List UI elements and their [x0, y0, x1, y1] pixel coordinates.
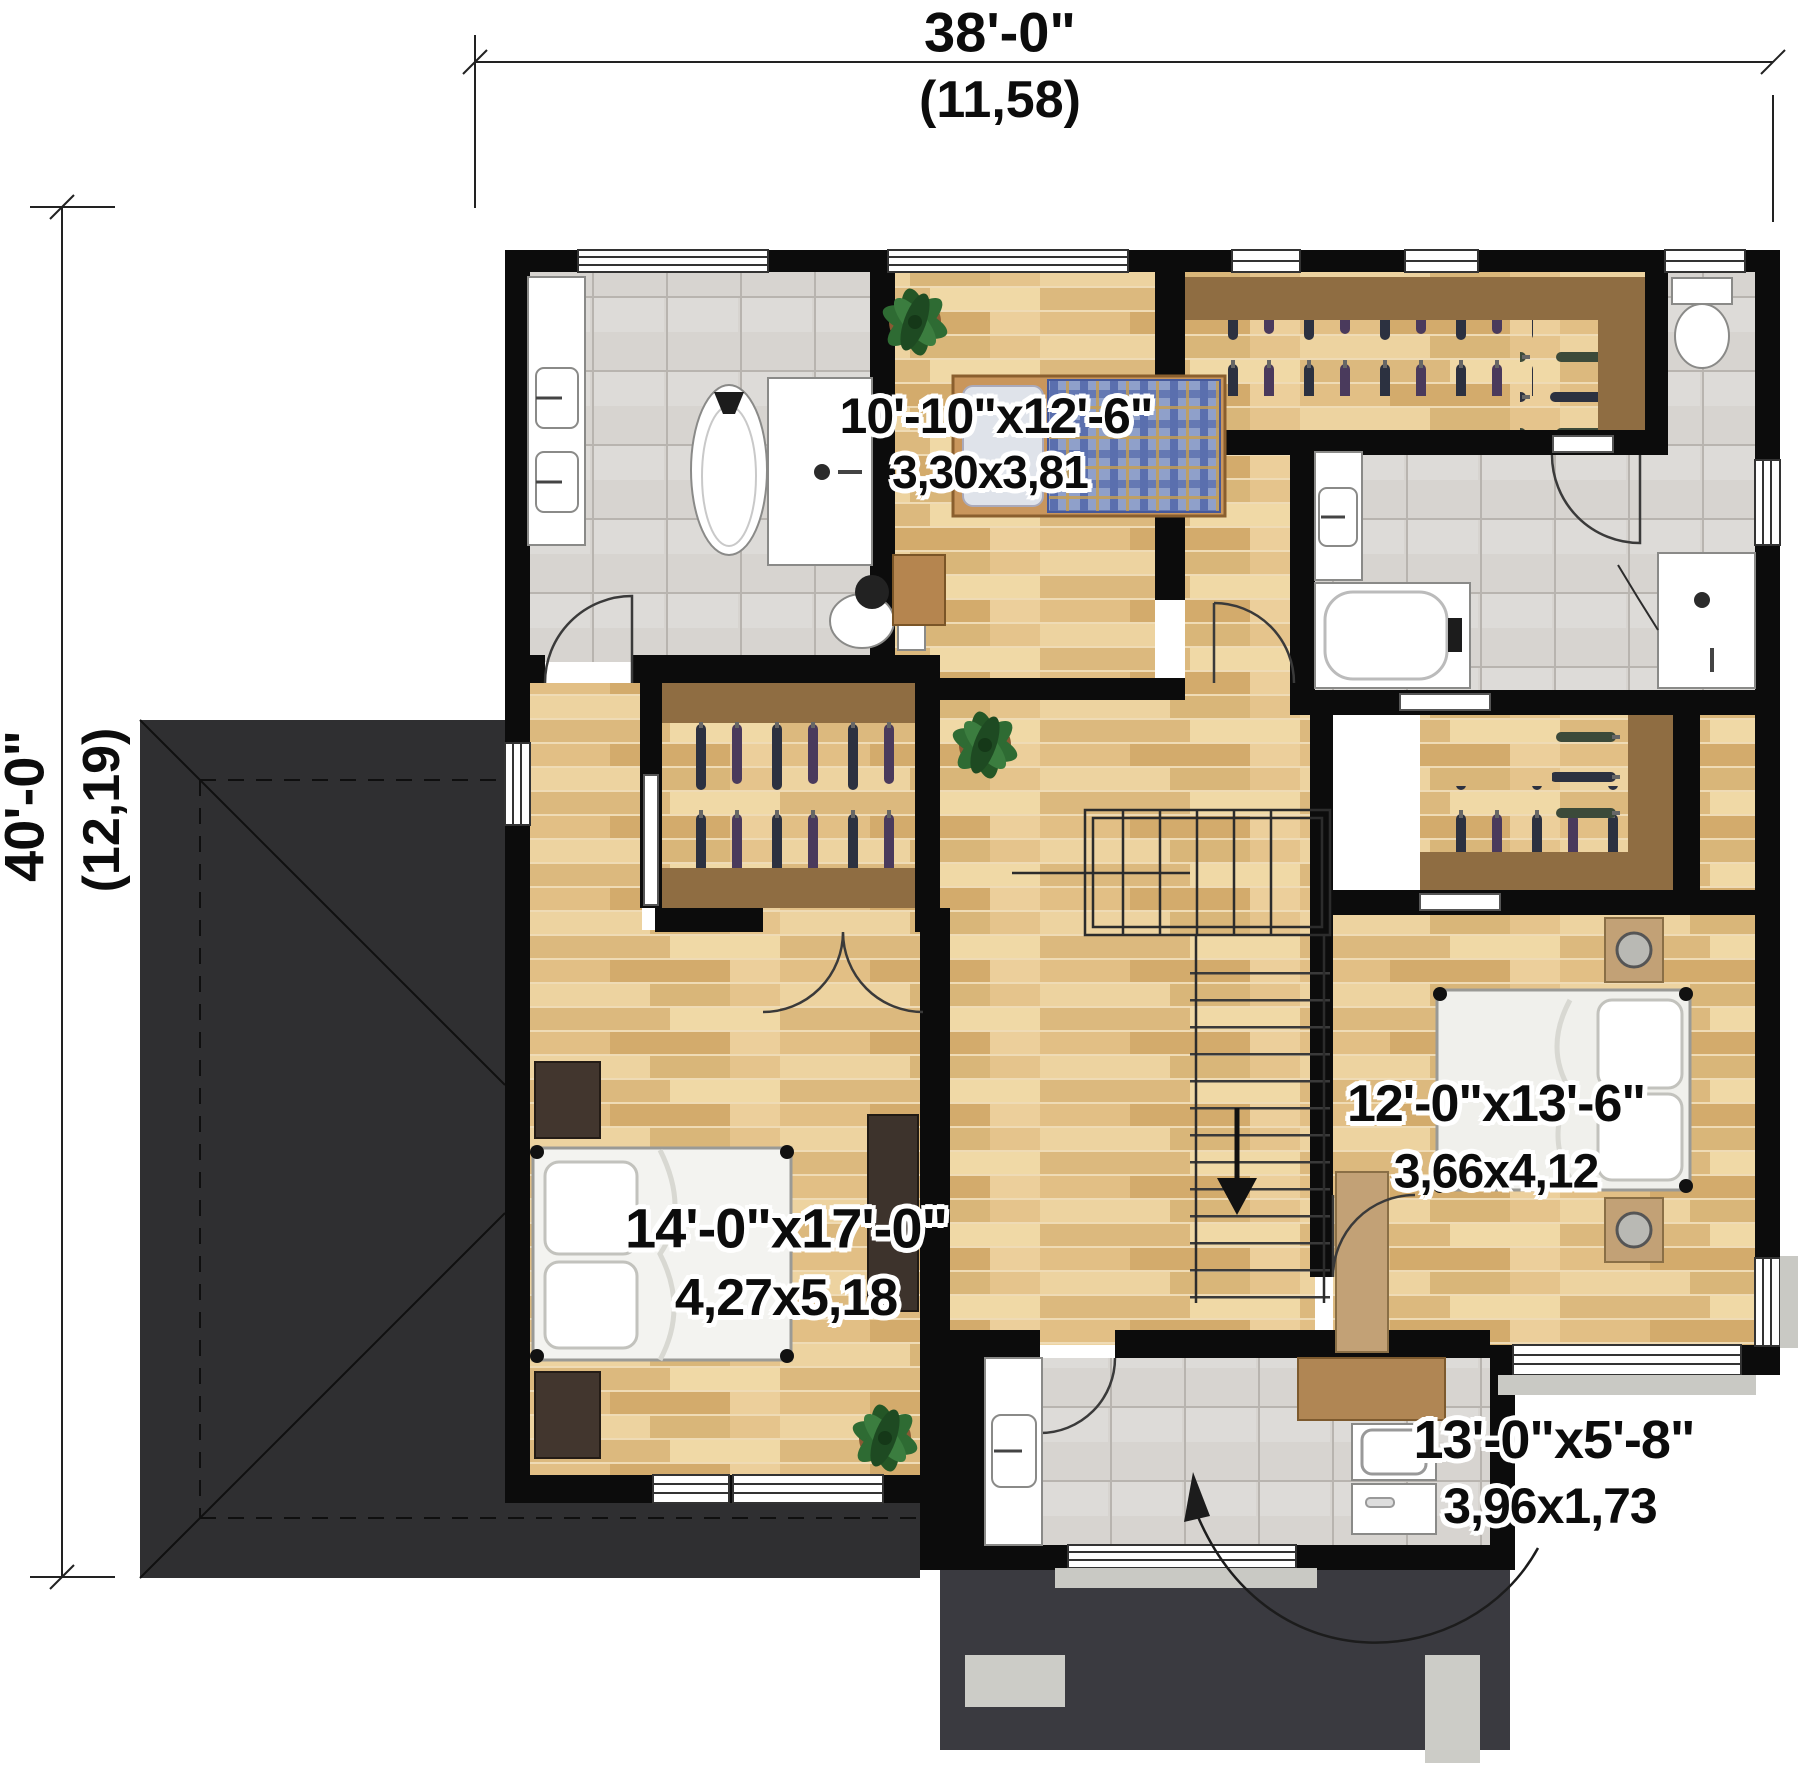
deck-step	[965, 1655, 1065, 1707]
overall-width-imperial: 38'-0"	[924, 0, 1076, 65]
lower-roof-strip	[505, 1503, 920, 1578]
window-sill	[1055, 1568, 1317, 1588]
closet-shelf	[662, 868, 915, 908]
lamp	[1617, 933, 1651, 967]
window	[1755, 460, 1780, 545]
window-sill	[1498, 1375, 1756, 1395]
bedroom-right-size-metric: 3,66x4,12	[1394, 1145, 1599, 1200]
master-bedroom-size-metric: 4,27x5,18	[675, 1268, 897, 1328]
wc-room	[1672, 278, 1732, 368]
closet-shelf	[1185, 277, 1645, 320]
tub-faucet	[1448, 618, 1462, 652]
window	[1513, 1345, 1741, 1375]
lamp	[1617, 1213, 1651, 1247]
laundry-size-metric: 3,96x1,73	[1443, 1477, 1656, 1535]
corridor-floor	[530, 683, 642, 932]
deck-step	[1425, 1655, 1480, 1763]
sliding-door	[1400, 694, 1490, 710]
shower	[1658, 553, 1755, 688]
hanging-clothes	[670, 798, 908, 868]
dresser	[1336, 1172, 1388, 1352]
bedroom-top-size-imperial: 10'-10"x12'-6"	[840, 387, 1153, 445]
desk-chair	[855, 575, 889, 609]
hanging-clothes	[1520, 330, 1598, 430]
dresser	[535, 1062, 600, 1138]
window	[1405, 250, 1478, 272]
closet-shelf	[1420, 852, 1673, 890]
window	[578, 250, 768, 272]
window-sill	[1780, 1256, 1798, 1348]
window	[1665, 250, 1745, 272]
closet-shelf	[662, 683, 915, 723]
overall-depth-metric: (12,19)	[72, 728, 132, 893]
laundry-size-imperial: 13'-0"x5'-8"	[1413, 1409, 1694, 1471]
dresser	[535, 1372, 600, 1458]
window	[1755, 1258, 1780, 1346]
window	[888, 250, 1128, 272]
sliding-door	[1553, 436, 1613, 452]
staircase	[1190, 935, 1330, 1303]
toilet	[1675, 304, 1729, 368]
window	[1232, 250, 1300, 272]
desk	[893, 555, 945, 625]
dryer	[1352, 1484, 1436, 1534]
floor-plan-page: 38'-0" (11,58) 40'-0" (12,19) 10'-10"x12…	[0, 0, 1800, 1792]
hanging-clothes	[1552, 722, 1628, 848]
hanging-clothes	[1198, 320, 1533, 396]
toilet-tank	[1672, 278, 1732, 304]
sliding-door	[1420, 894, 1500, 910]
window	[505, 743, 530, 825]
master-bedroom-size-imperial: 14'-0"x17'-0"	[625, 1196, 947, 1261]
window	[733, 1475, 883, 1503]
bedroom-right-size-imperial: 12'-0"x13'-6"	[1347, 1074, 1645, 1134]
pillow	[545, 1262, 637, 1348]
hanging-clothes	[670, 722, 908, 792]
window	[653, 1475, 729, 1503]
bedroom-top-size-metric: 3,30x3,81	[892, 445, 1088, 499]
closet-shelf	[1628, 715, 1673, 855]
overall-depth-imperial: 40'-0"	[0, 730, 57, 882]
rear-deck	[940, 1570, 1510, 1763]
closet-shelf	[1598, 277, 1645, 430]
overall-width-metric: (11,58)	[919, 70, 1081, 130]
pillow	[545, 1162, 637, 1254]
window	[1068, 1545, 1296, 1568]
pocket-door	[644, 775, 658, 905]
